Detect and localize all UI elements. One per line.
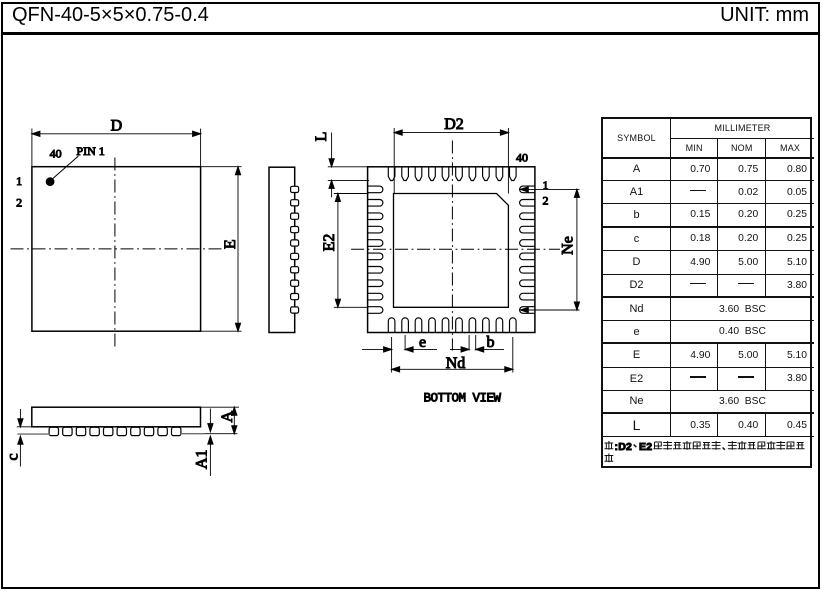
svg-text:D2: D2	[444, 116, 464, 133]
svg-text:2: 2	[543, 194, 549, 208]
svg-text:D: D	[111, 118, 123, 135]
svg-text:1: 1	[16, 174, 22, 188]
svg-text:b: b	[487, 334, 495, 351]
svg-text:E: E	[222, 239, 239, 249]
svg-text:Nd: Nd	[446, 355, 466, 372]
svg-text:40: 40	[50, 146, 62, 160]
svg-text:2: 2	[16, 195, 22, 209]
svg-text:A: A	[219, 410, 236, 422]
svg-text:c: c	[4, 453, 21, 460]
svg-text:BOTTOM VIEW: BOTTOM VIEW	[423, 392, 501, 406]
svg-text:e: e	[419, 334, 426, 351]
svg-text:Ne: Ne	[560, 236, 577, 255]
svg-text:PIN 1: PIN 1	[76, 144, 104, 158]
svg-text:40: 40	[516, 151, 528, 165]
svg-text:E2: E2	[321, 234, 338, 252]
svg-text:1: 1	[543, 178, 549, 192]
svg-text:A1: A1	[193, 450, 210, 470]
svg-text:L: L	[313, 132, 330, 142]
